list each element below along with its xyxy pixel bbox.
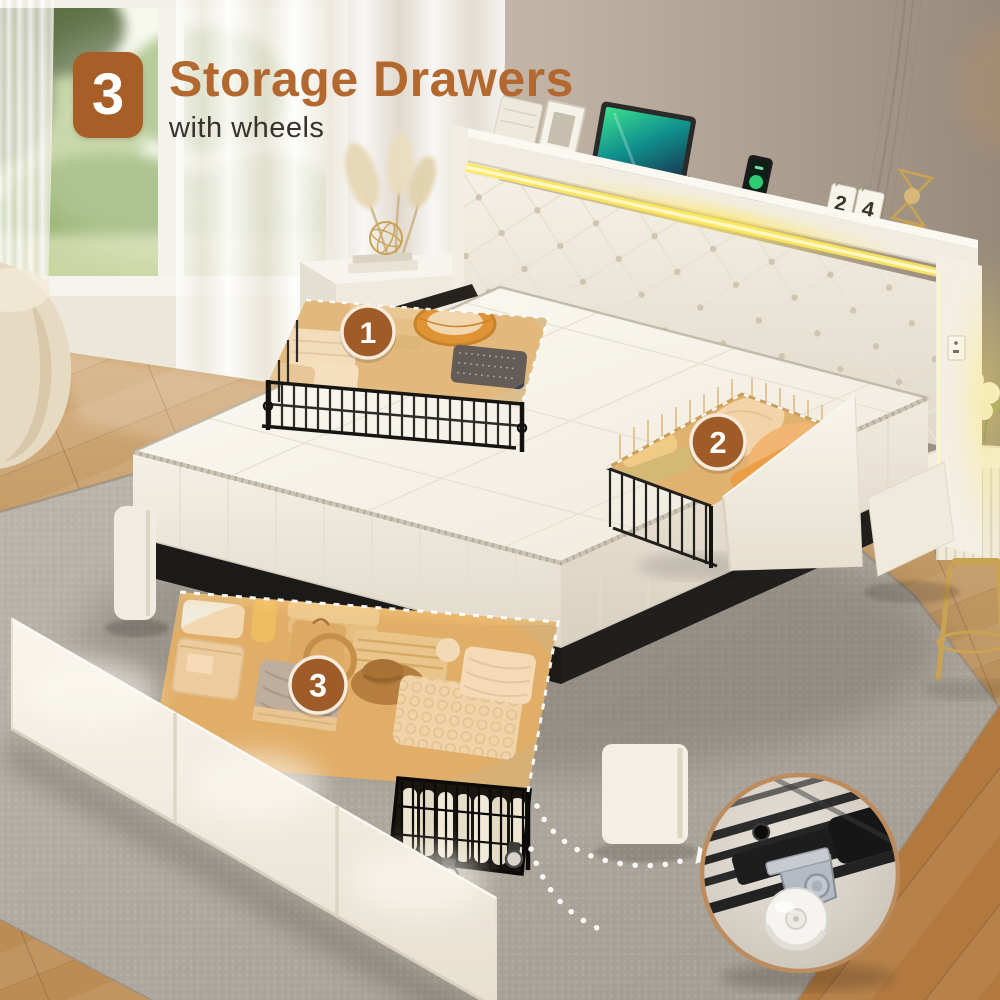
caster-wheel [765,847,836,950]
header-count-badge: 3 [73,52,143,138]
drawer-marker-3: 3 [288,657,348,718]
drawer-marker-2: 2 [689,415,747,474]
page-title: Storage Drawers [169,54,574,105]
product-image: 2 4 [0,0,1000,1000]
drawer-marker-1: 1 [340,306,396,363]
header-banner: 3 Storage Drawers with wheels [73,52,574,145]
marker-1-label: 1 [360,317,377,350]
header-count: 3 [92,62,124,127]
decor-books [347,252,418,274]
bedroom-scene: 2 4 [0,0,1000,1000]
header-titles: Storage Drawers with wheels [169,52,574,145]
bed-leg-front [594,744,698,863]
marker-2-label: 2 [709,425,726,460]
page-subtitle: with wheels [169,112,574,145]
marker-3-label: 3 [309,668,327,704]
